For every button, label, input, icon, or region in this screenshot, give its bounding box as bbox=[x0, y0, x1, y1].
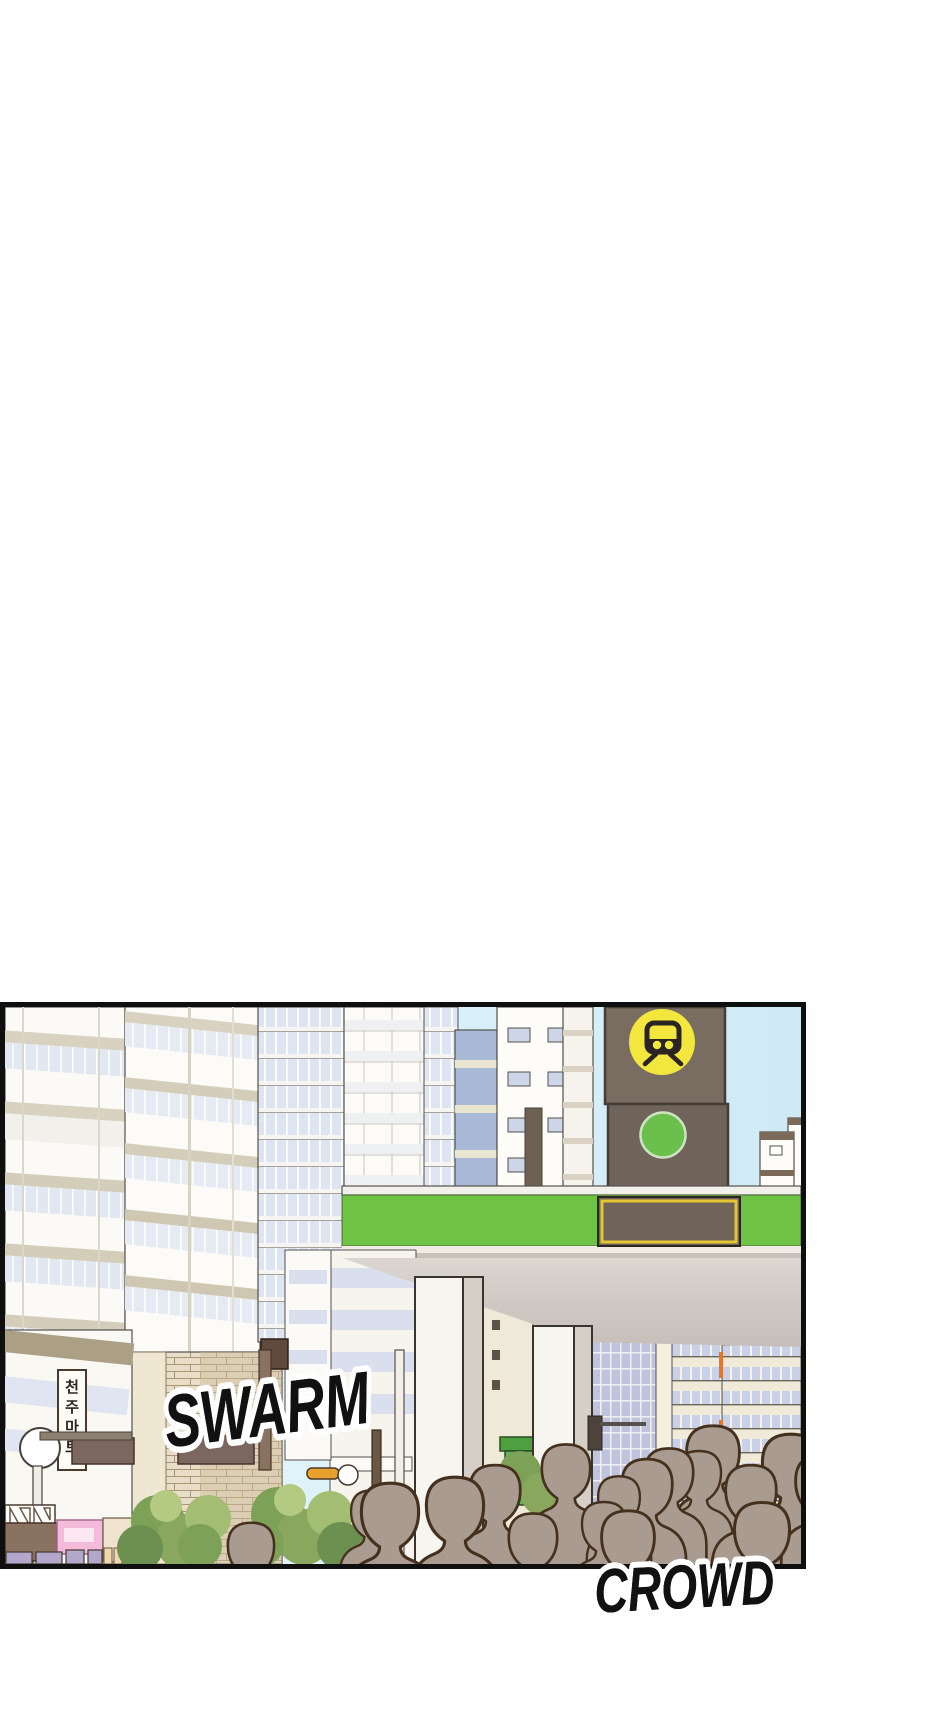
svg-text:주: 주 bbox=[65, 1399, 79, 1416]
svg-text:천: 천 bbox=[65, 1378, 79, 1396]
svg-text:CROWD: CROWD bbox=[593, 1548, 776, 1626]
